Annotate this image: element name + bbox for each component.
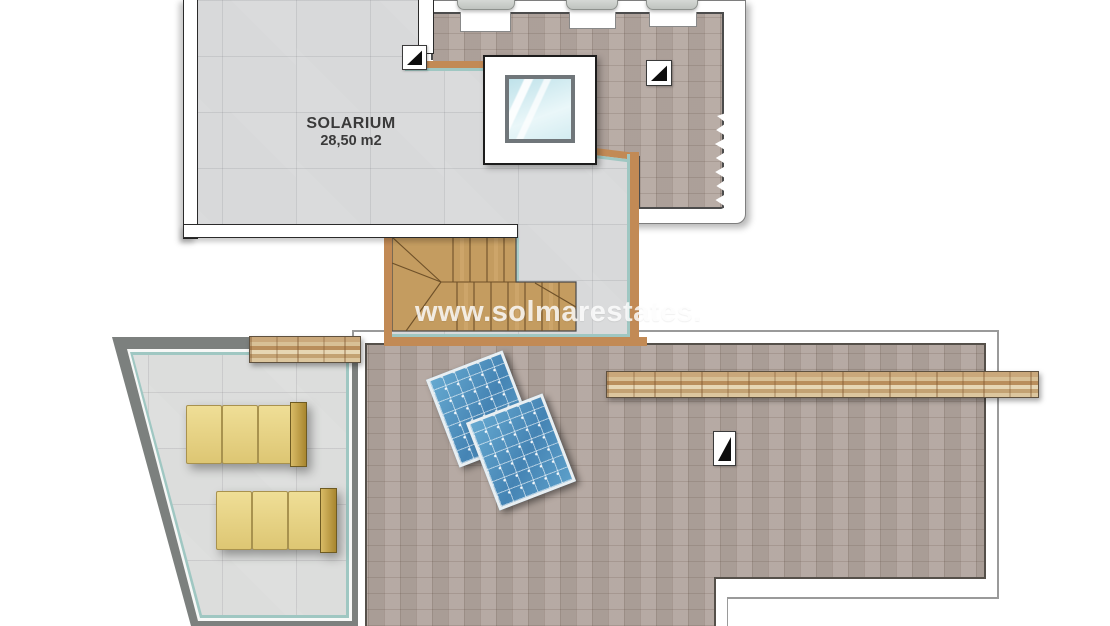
- sun-lounger-1: [186, 404, 308, 464]
- parapet-cap: [457, 0, 515, 10]
- stone-strip-long: [606, 371, 1039, 398]
- stone-strip-short: [249, 336, 361, 363]
- room-area: 28,50 m2: [280, 133, 422, 149]
- lounger-cushion: [186, 405, 222, 464]
- sun-lounger-2: [216, 490, 338, 550]
- room-name: SOLARIUM: [280, 115, 422, 133]
- parapet-notch: [569, 12, 616, 29]
- lounger-cushion: [222, 405, 258, 464]
- lounger-frame: [320, 488, 337, 553]
- lounger-cushion: [252, 491, 288, 550]
- lounger-frame: [290, 402, 307, 467]
- lounger-cushion: [288, 491, 324, 550]
- watermark: www.solmarestates.: [415, 296, 702, 329]
- lounger-cushion: [258, 405, 294, 464]
- skylight-glass: [505, 75, 575, 143]
- lounger-cushion: [216, 491, 252, 550]
- skylight: [483, 55, 597, 165]
- room-label: SOLARIUM 28,50 m2: [280, 115, 422, 149]
- parapet-cap: [566, 0, 618, 10]
- wall-bottom: [183, 224, 518, 238]
- parapet-notch: [460, 12, 511, 32]
- parapet-cap: [646, 0, 698, 10]
- slope-marker-icon: [646, 60, 672, 86]
- edge-border-tan: [384, 337, 647, 346]
- edge-border-tan: [384, 237, 392, 346]
- wall-left: [183, 0, 198, 239]
- slope-marker-icon: [402, 45, 427, 70]
- parapet-notch: [649, 12, 697, 27]
- drain-marker-icon: [713, 431, 736, 466]
- floor-plan: SOLARIUM 28,50 m2 www.solmarestates.: [0, 0, 1110, 626]
